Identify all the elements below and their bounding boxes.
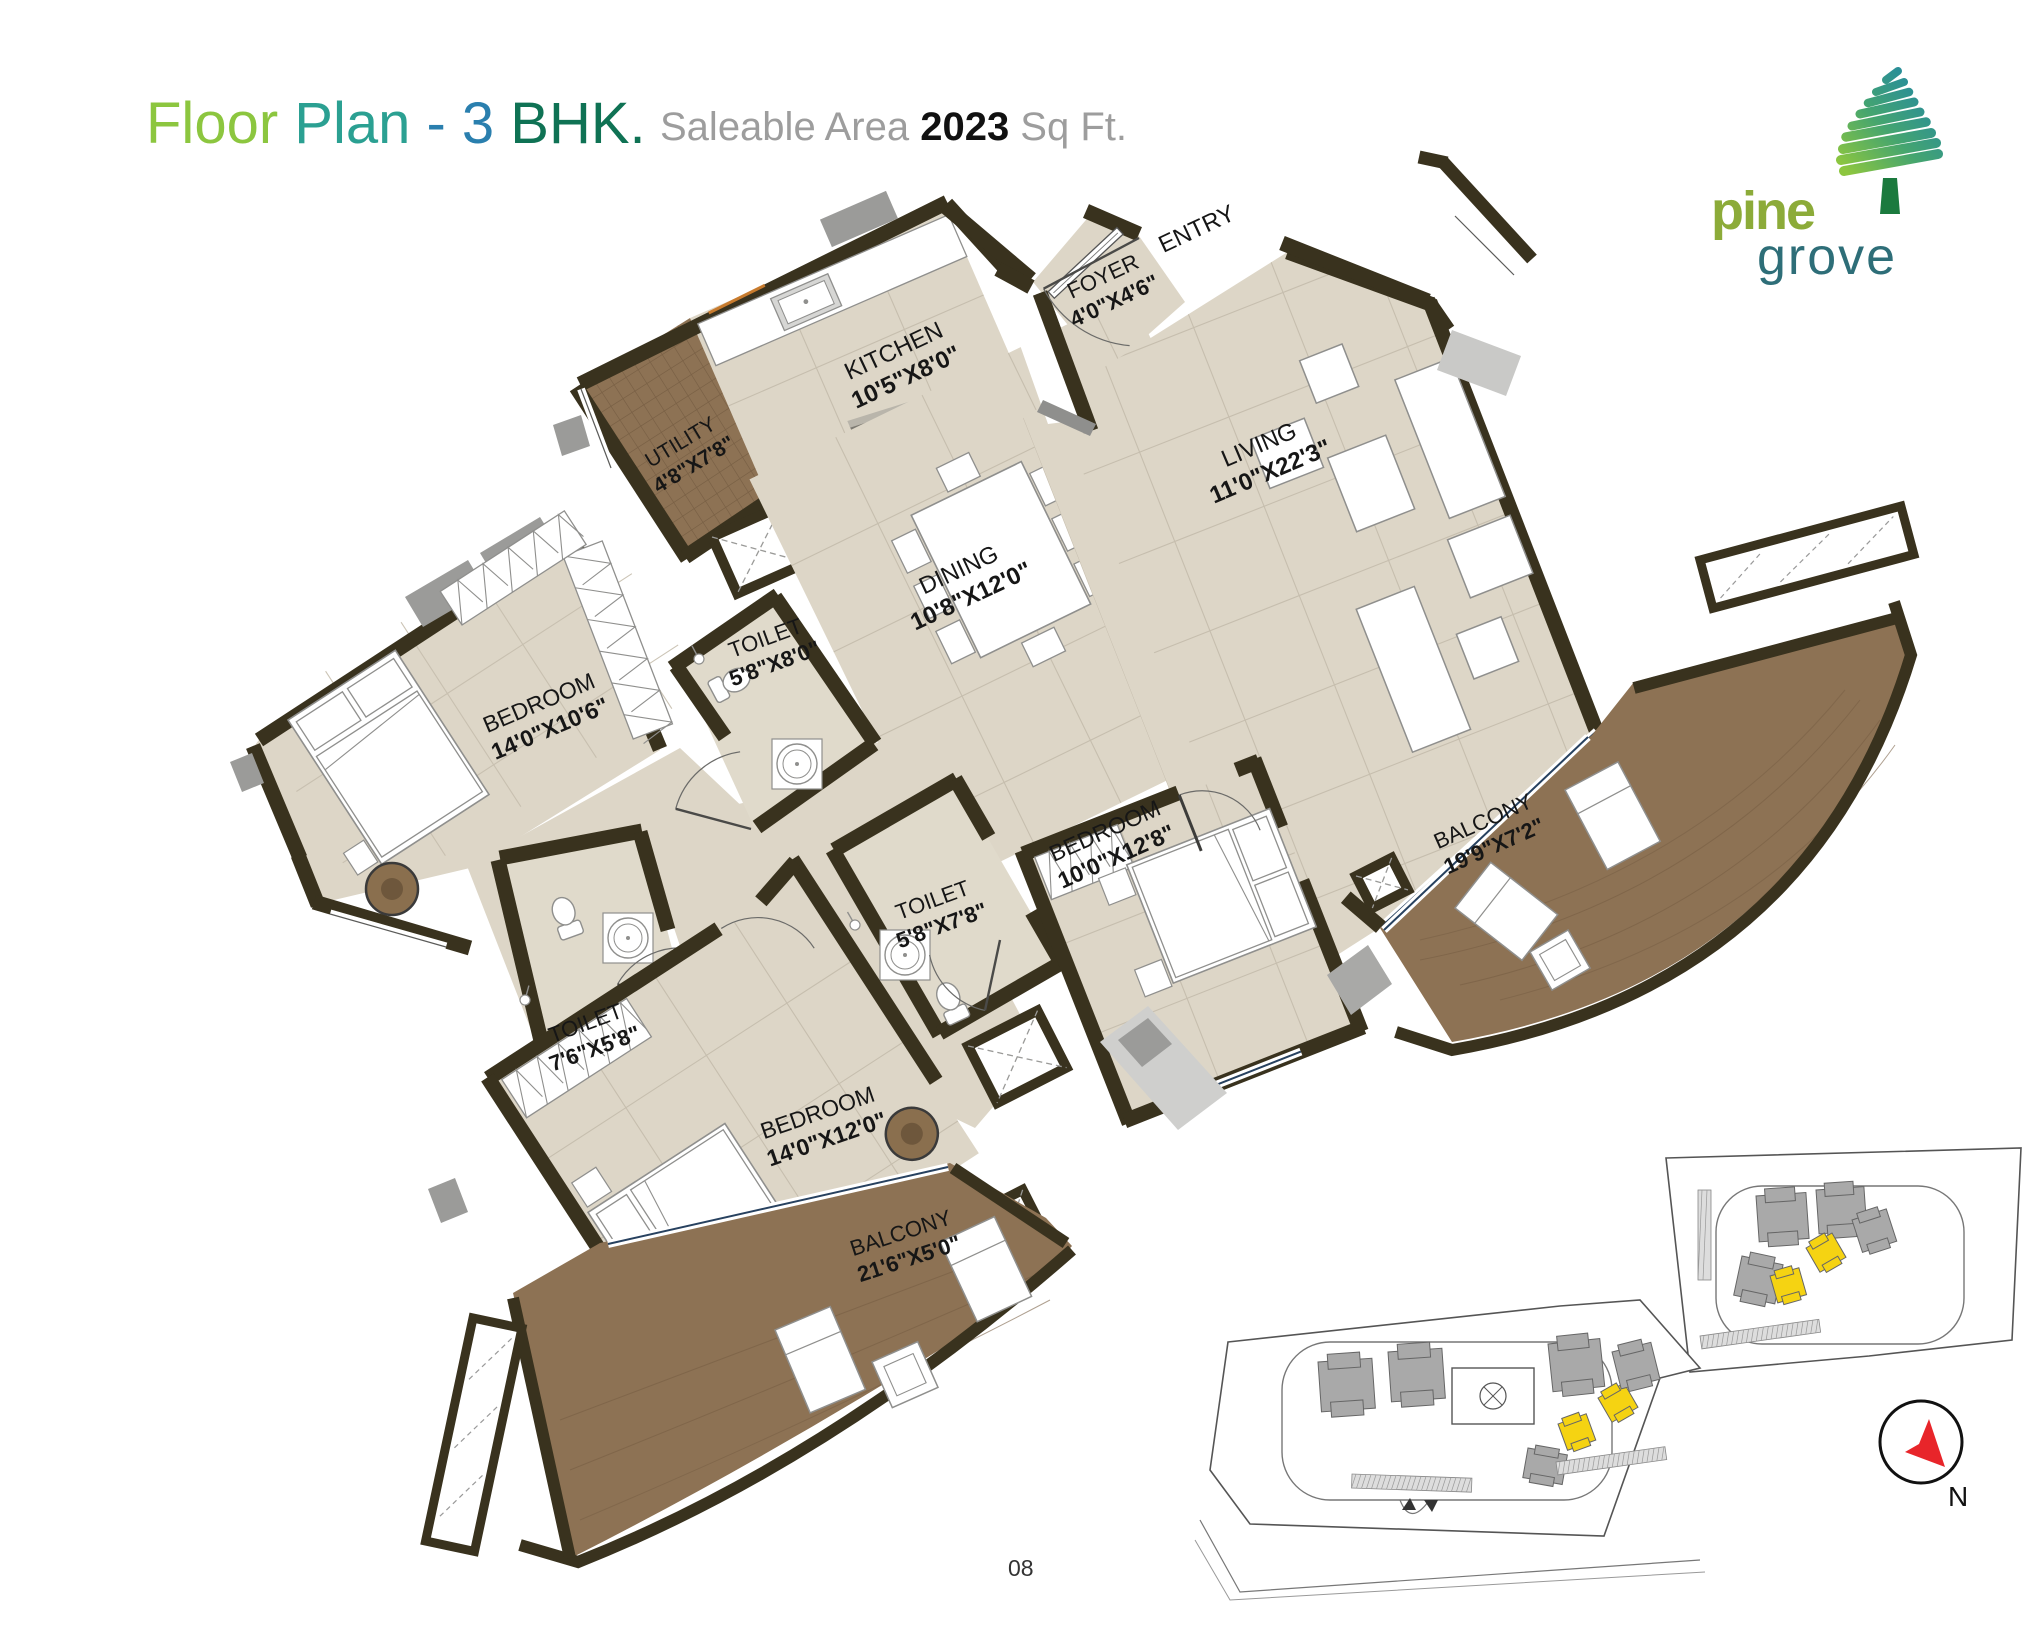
svg-text:Saleable Area 2023 Sq Ft.: Saleable Area 2023 Sq Ft. <box>660 105 1127 149</box>
svg-text:08: 08 <box>1008 1555 1034 1581</box>
svg-text:Floor Plan - 3 BHK.: Floor Plan - 3 BHK. <box>146 91 646 156</box>
svg-text:N: N <box>1948 1481 1968 1512</box>
svg-text:grove: grove <box>1757 228 1897 286</box>
